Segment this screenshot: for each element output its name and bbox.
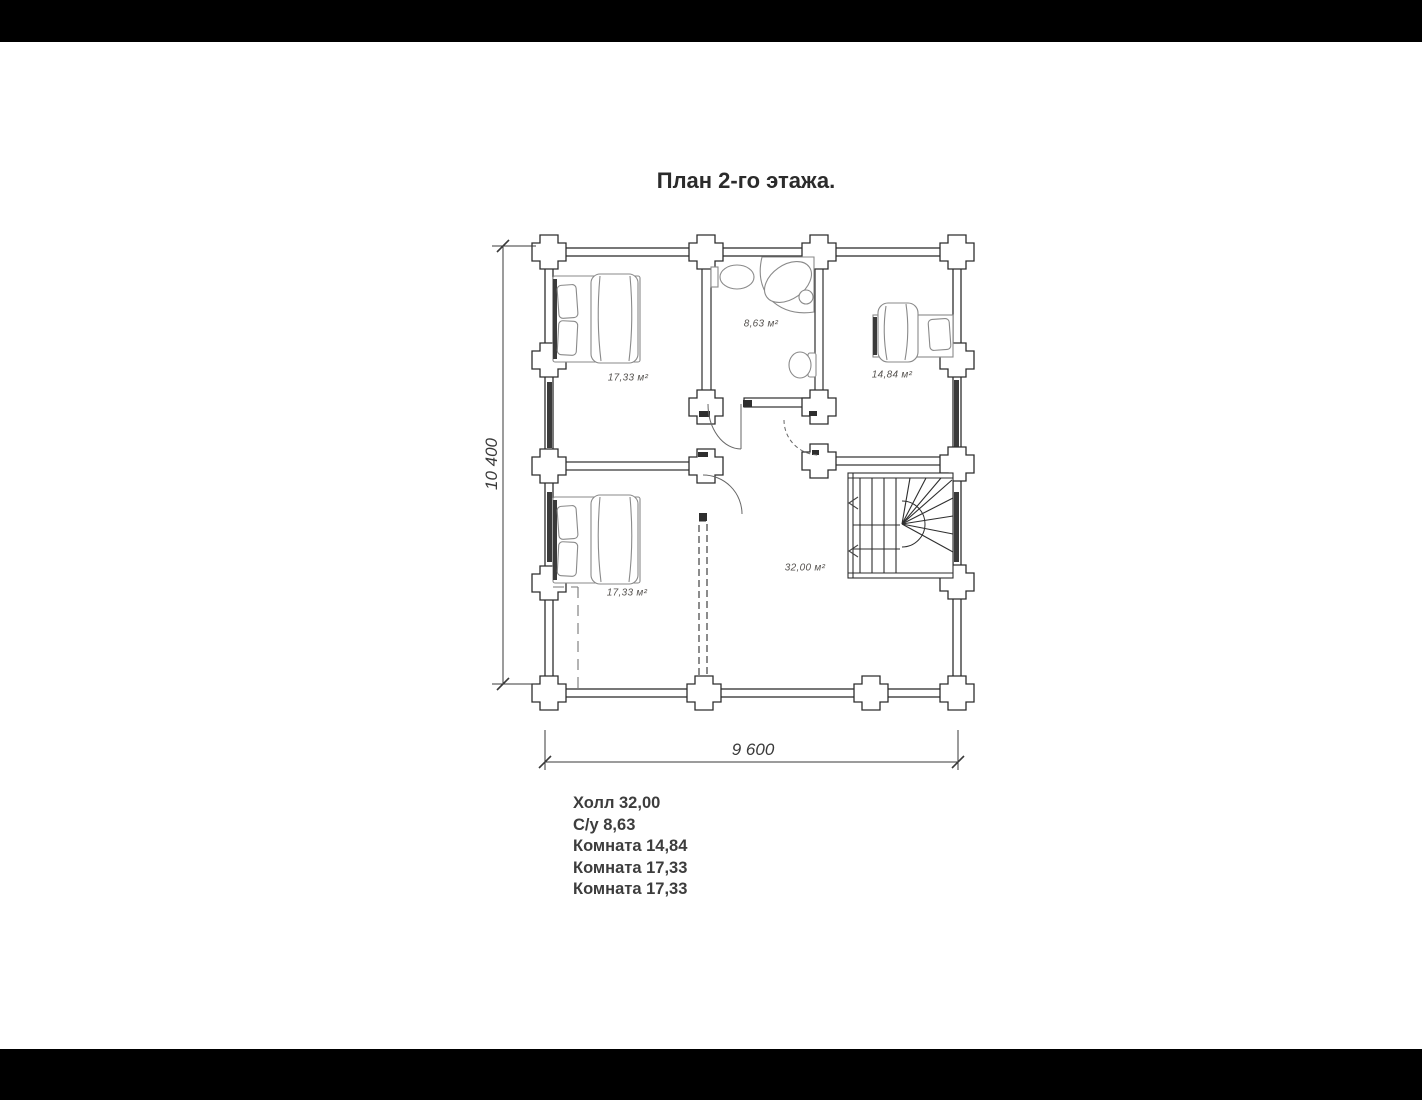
legend-line-room-1484: Комната 14,84 xyxy=(573,836,687,858)
legend-line-bathroom: С/у 8,63 xyxy=(573,815,687,837)
room-area-label-bedroom-lower-left: 17,33 м² xyxy=(607,588,647,599)
legend-line-hall: Холл 32,00 xyxy=(573,793,687,815)
room-area-label-bedroom-upper-left: 17,33 м² xyxy=(608,373,648,384)
letterbox-bottom-bar xyxy=(0,1049,1422,1100)
legend-line-room-1733b: Комната 17,33 xyxy=(573,879,687,901)
letterbox-top-bar xyxy=(0,0,1422,42)
dimension-width-label: 9 600 xyxy=(732,740,775,760)
room-legend: Холл 32,00 С/у 8,63 Комната 14,84 Комнат… xyxy=(573,793,687,901)
legend-line-room-1733a: Комната 17,33 xyxy=(573,858,687,880)
room-area-label-bathroom: 8,63 м² xyxy=(744,319,779,330)
room-area-label-hall: 32,00 м² xyxy=(785,563,825,574)
page-title: План 2-го этажа. xyxy=(657,168,836,194)
floor-plan-drawing xyxy=(475,220,975,790)
dimension-height-label: 10 400 xyxy=(482,438,502,490)
room-area-label-bedroom-right: 14,84 м² xyxy=(872,370,912,381)
screenshot-stage: План 2-го этажа. xyxy=(0,0,1422,1100)
